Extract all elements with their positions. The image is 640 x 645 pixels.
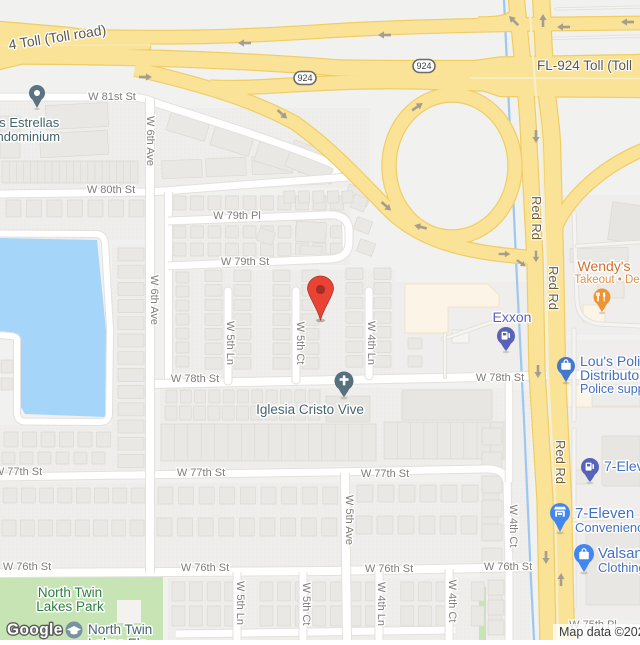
svg-text:W 81st St: W 81st St [88, 91, 136, 103]
svg-text:FL-924 Toll (Toll: FL-924 Toll (Toll [537, 58, 632, 73]
svg-text:W 77th St: W 77th St [177, 467, 225, 479]
svg-text:W 4th Ln: W 4th Ln [375, 582, 387, 626]
svg-text:W 77th St: W 77th St [0, 466, 42, 478]
svg-text:Iglesia Cristo Vive: Iglesia Cristo Vive [256, 402, 364, 417]
svg-text:W 4th Ct: W 4th Ct [507, 505, 519, 548]
svg-text:Red Rd: Red Rd [553, 440, 568, 484]
svg-text:W 5th Ln: W 5th Ln [224, 321, 236, 365]
svg-text:Red Rd: Red Rd [546, 266, 561, 310]
svg-text:Las Estrellas: Las Estrellas [0, 115, 60, 130]
svg-text:W 79th St: W 79th St [221, 256, 269, 268]
svg-text:Lakes Park: Lakes Park [36, 599, 104, 614]
svg-text:Google: Google [7, 622, 63, 639]
svg-text:W 76th St: W 76th St [181, 562, 229, 574]
svg-text:W 77th St: W 77th St [361, 468, 409, 480]
svg-text:Distributor: Distributor [580, 367, 640, 383]
svg-text:924: 924 [416, 61, 431, 71]
svg-text:W 76th St: W 76th St [365, 563, 413, 575]
svg-text:Red Rd: Red Rd [529, 196, 544, 240]
svg-text:W 80th St: W 80th St [87, 184, 135, 196]
svg-text:Lakes Ele: Lakes Ele [88, 636, 147, 640]
svg-text:Map data ©2021: Map data ©2021 [559, 625, 640, 639]
svg-text:W 78th St: W 78th St [171, 373, 219, 385]
svg-text:924: 924 [297, 73, 312, 83]
svg-text:W 6th Ave: W 6th Ave [144, 116, 156, 166]
svg-text:W 79th Pl: W 79th Pl [213, 210, 261, 222]
svg-text:Takeout • De: Takeout • De [574, 274, 639, 286]
svg-text:Clothing: Clothing [598, 560, 640, 575]
svg-text:W 76th St: W 76th St [3, 561, 51, 573]
svg-text:North Twin: North Twin [88, 622, 152, 637]
svg-text:W 76th St: W 76th St [484, 561, 532, 573]
svg-text:7-Eleve: 7-Eleve [604, 458, 640, 474]
svg-text:W 5th Ln: W 5th Ln [234, 581, 246, 625]
svg-text:Condominium: Condominium [0, 129, 60, 144]
svg-text:W 5th Ct: W 5th Ct [294, 322, 306, 365]
svg-text:Exxon: Exxon [493, 309, 532, 325]
svg-text:W 5th Ct: W 5th Ct [300, 583, 312, 626]
svg-text:Convenience s: Convenience s [575, 520, 640, 535]
svg-text:W 4th Ct: W 4th Ct [446, 580, 458, 623]
svg-text:W 5th Ave: W 5th Ave [343, 495, 355, 545]
svg-text:Wendy's: Wendy's [578, 258, 631, 274]
svg-text:Police supply: Police supply [580, 382, 640, 396]
svg-text:W 78th St: W 78th St [476, 372, 524, 384]
svg-text:North Twin: North Twin [38, 585, 102, 600]
svg-text:W 4th Ln: W 4th Ln [365, 321, 377, 365]
svg-text:W 6th Ave: W 6th Ave [148, 275, 160, 325]
